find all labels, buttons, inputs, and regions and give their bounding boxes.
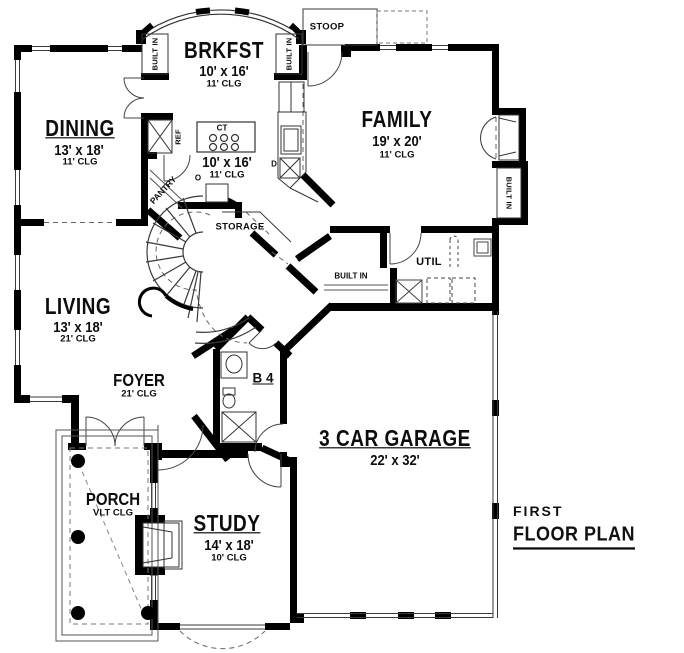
room-clg-living: 21' CLG <box>60 334 96 345</box>
builtin-label-family: BUILT IN <box>505 177 514 210</box>
breakfast-bay-window <box>140 10 302 39</box>
room-label-study: STUDY <box>194 512 261 538</box>
room-clg-brkfst: 11' CLG <box>207 79 242 90</box>
builtin-label-hall: BUILT IN <box>334 272 367 281</box>
room-clg-family: 11' CLG <box>380 150 415 161</box>
study-fireplace-hearth <box>143 521 182 569</box>
room-clg-porch: VLT CLG <box>93 508 133 519</box>
plan-title-line1: FIRST <box>513 503 563 519</box>
room-label-bath: B 4 <box>252 371 273 386</box>
room-dims-study: 14' x 18' <box>204 537 254 554</box>
room-label-dining: DINING <box>45 117 115 143</box>
breakfast-counter <box>279 82 304 112</box>
room-dims-garage: 22' x 32' <box>370 452 420 469</box>
room-label-storage: STORAGE <box>216 222 265 233</box>
room-dims-kitchen: 10' x 16' <box>202 154 252 171</box>
floor-plan-page: BRKFST 10' x 16' 11' CLG DINING 13' x 18… <box>0 0 684 653</box>
room-label-garage: 3 CAR GARAGE <box>319 427 471 453</box>
family-fireplace <box>481 115 519 160</box>
plan-title-line2: FLOOR PLAN <box>513 522 635 550</box>
dashed-lines <box>44 84 496 649</box>
diagonal-walls <box>148 175 333 462</box>
room-label-brkfst: BRKFST <box>184 39 264 65</box>
ref-label: REF <box>174 129 183 145</box>
oven-label: O <box>195 174 201 183</box>
room-dims-brkfst: 10' x 16' <box>199 63 249 80</box>
builtin-label-right: BUILT IN <box>285 38 294 71</box>
room-label-family: FAMILY <box>362 108 433 134</box>
oven <box>206 184 228 202</box>
room-label-util: UTIL <box>416 256 442 268</box>
room-clg-dining: 11' CLG <box>63 157 98 168</box>
room-label-living: LIVING <box>45 295 111 321</box>
utility-fixtures <box>396 236 491 303</box>
bath-fixtures <box>221 352 256 442</box>
room-clg-foyer: 21' CLG <box>121 389 157 400</box>
room-label-stoop: STOOP <box>310 22 345 33</box>
mudroom-builtin-shelves <box>324 285 388 290</box>
room-dims-family: 19' x 20' <box>372 133 422 150</box>
dishwasher-label: D <box>271 160 277 169</box>
refrigerator <box>148 120 172 153</box>
builtin-label-left: BUILT IN <box>151 38 160 71</box>
cooktop-label: CT <box>217 124 228 133</box>
room-clg-study: 10' CLG <box>211 553 247 564</box>
room-clg-kitchen: 11' CLG <box>210 170 245 181</box>
